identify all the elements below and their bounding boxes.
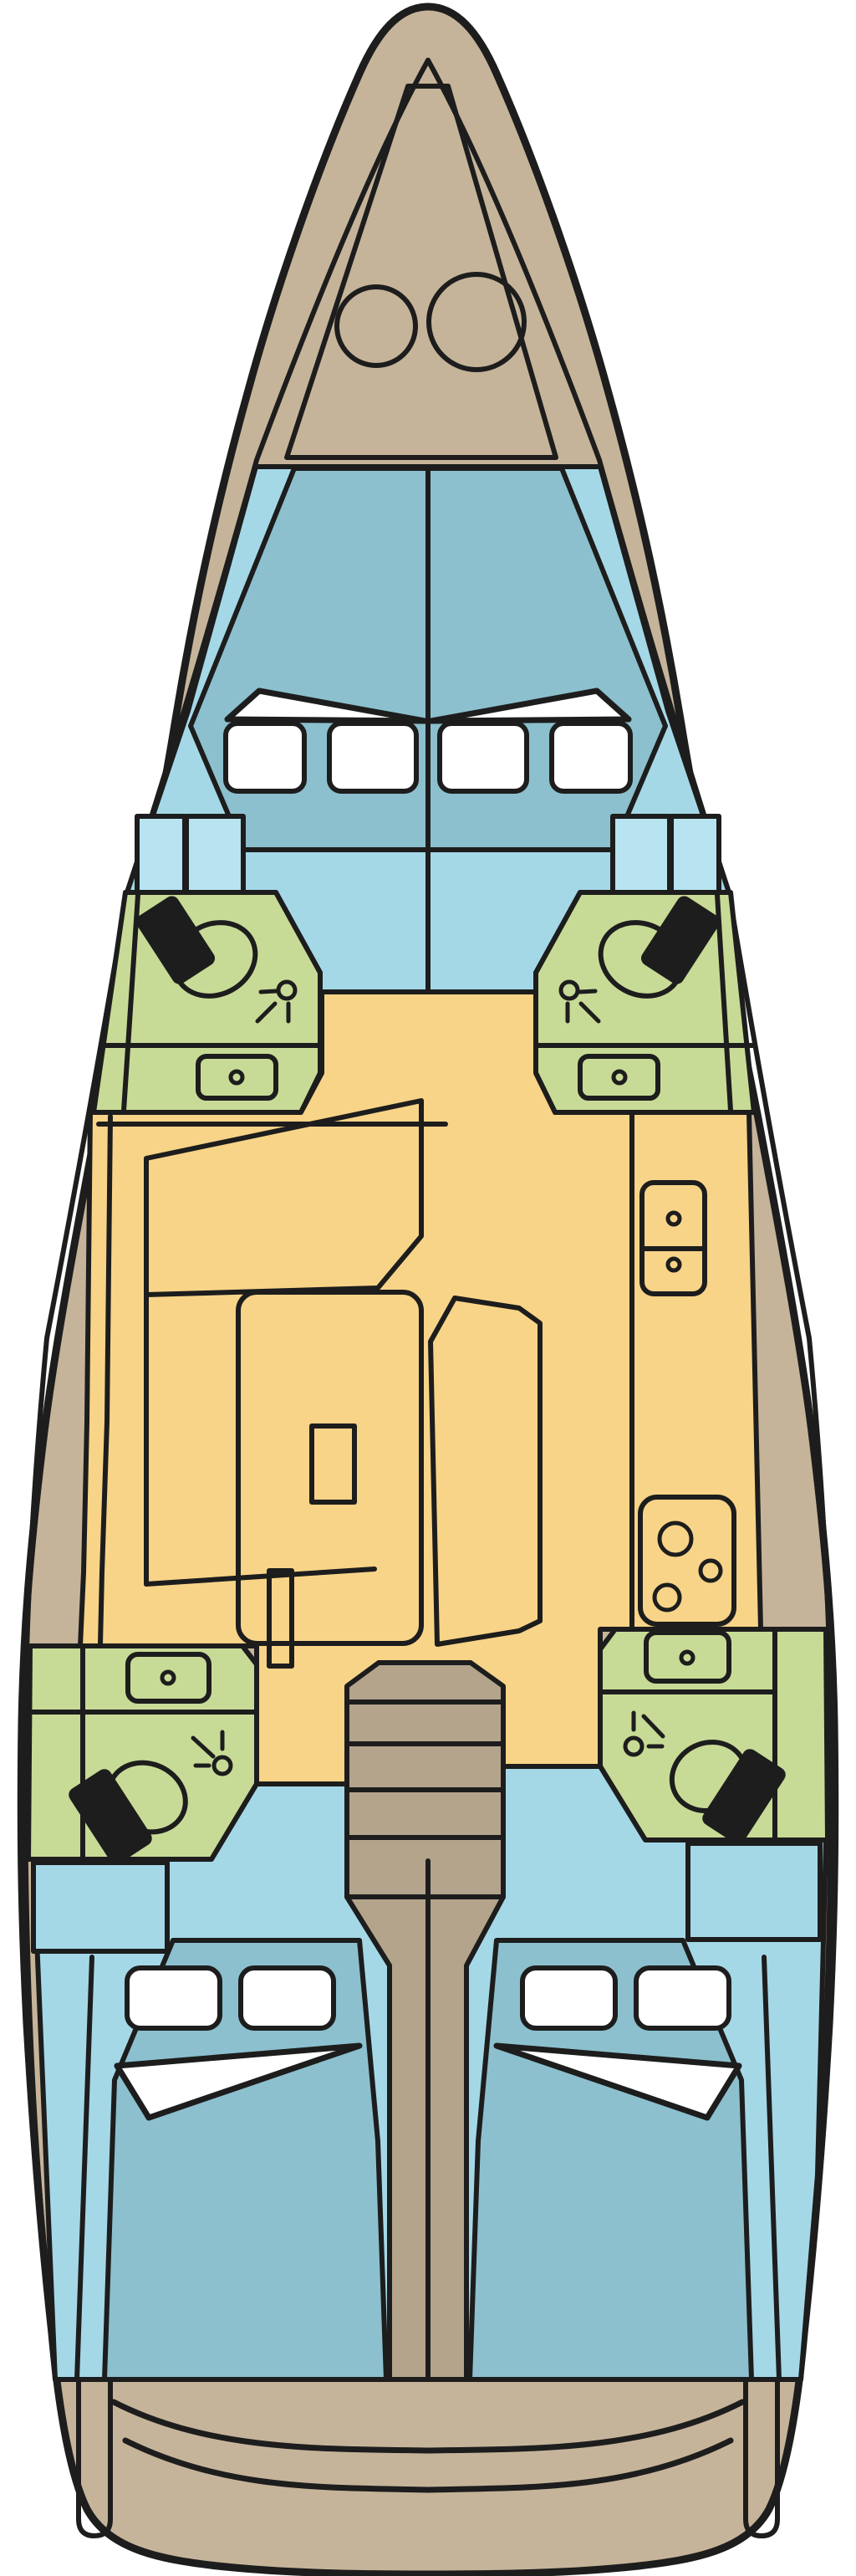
hull-window-4 [552,723,630,791]
pillow-2 [522,1968,615,2028]
pillow-1 [636,1968,729,2028]
forward-head-starboard [536,892,754,1112]
forward-head-port [94,892,320,1112]
hull-window-1 [226,723,304,791]
pillow-1 [127,1968,220,2028]
locker-box [688,1843,820,1940]
yacht-floor-plan-canvas [0,0,856,2576]
locker-box [33,1863,167,1951]
hull-window-2 [329,723,416,791]
yacht-floor-plan [0,0,856,2576]
pillow-2 [241,1968,334,2028]
aft-head-starboard [600,1629,828,1843]
hull-window-3 [440,723,527,791]
aft-head-port [28,1646,257,1863]
